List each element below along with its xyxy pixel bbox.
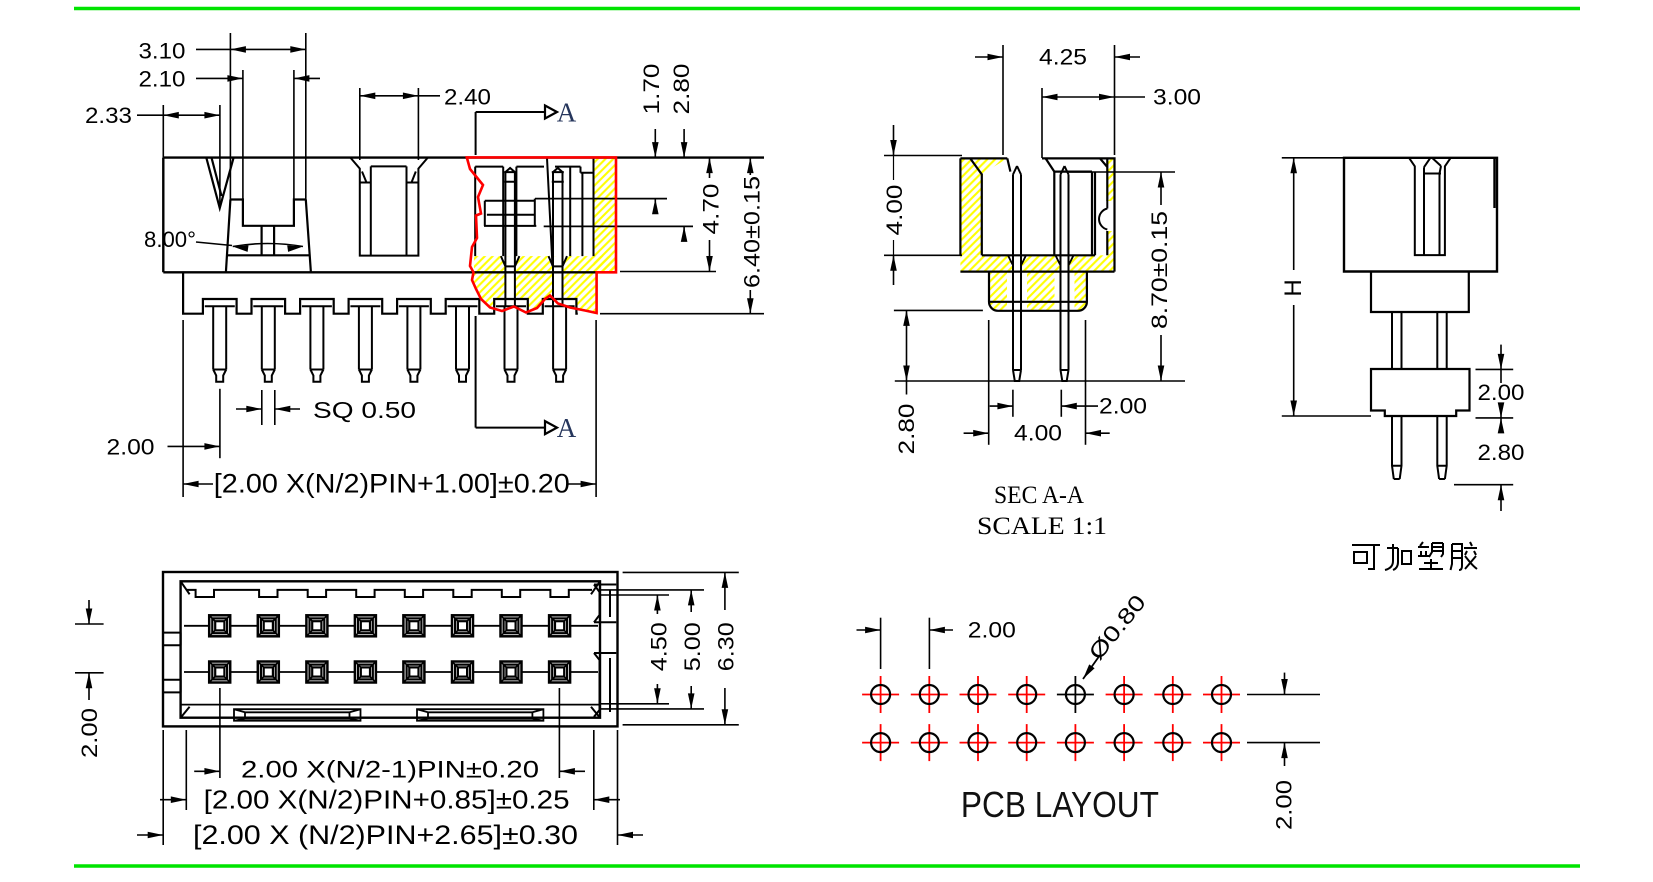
svg-text:3.10: 3.10 [139,39,186,64]
svg-text:2.00: 2.00 [77,708,102,758]
svg-text:2.80: 2.80 [669,64,694,115]
svg-text:[2.00 X(N/2)PIN+1.00]±0.20: [2.00 X(N/2)PIN+1.00]±0.20 [214,469,570,499]
svg-text:2.00: 2.00 [968,618,1016,643]
svg-text:2.80: 2.80 [1478,440,1525,465]
svg-text:4.00: 4.00 [882,185,907,236]
svg-text:SCALE 1:1: SCALE 1:1 [977,513,1107,540]
svg-text:SQ 0.50: SQ 0.50 [313,397,416,423]
svg-text:2.00 X(N/2-1)PIN±0.20: 2.00 X(N/2-1)PIN±0.20 [241,757,539,784]
svg-text:8.70±0.15: 8.70±0.15 [1147,211,1172,329]
svg-text:4.70: 4.70 [699,184,724,235]
svg-text:8.00°: 8.00° [144,227,196,252]
svg-text:4.50: 4.50 [647,622,672,671]
svg-text:4.25: 4.25 [1039,45,1087,70]
svg-text:6.40±0.15: 6.40±0.15 [740,176,765,288]
svg-text:SEC A-A: SEC A-A [994,482,1084,509]
svg-text:PCB LAYOUT: PCB LAYOUT [961,784,1159,825]
svg-text:4.00: 4.00 [1014,421,1062,446]
svg-text:2.00: 2.00 [107,435,155,460]
svg-text:H: H [1280,279,1307,296]
svg-text:6.30: 6.30 [714,622,739,671]
svg-text:5.00: 5.00 [680,622,705,671]
svg-text:[2.00 X(N/2)PIN+0.85]±0.25: [2.00 X(N/2)PIN+0.85]±0.25 [204,787,570,815]
svg-text:2.10: 2.10 [139,67,186,92]
svg-text:2.40: 2.40 [444,85,491,110]
svg-text:2.33: 2.33 [85,103,132,128]
svg-text:3.00: 3.00 [1153,85,1201,110]
svg-text:2.00: 2.00 [1099,394,1147,419]
svg-text:2.00: 2.00 [1478,380,1525,405]
svg-text:2.00: 2.00 [1272,780,1297,830]
svg-text:A: A [557,413,577,443]
svg-text:2.80: 2.80 [894,404,919,455]
svg-text:A: A [557,98,577,128]
svg-text:1.70: 1.70 [639,64,664,115]
svg-text:[2.00 X (N/2)PIN+2.65]±0.30: [2.00 X (N/2)PIN+2.65]±0.30 [193,820,578,850]
